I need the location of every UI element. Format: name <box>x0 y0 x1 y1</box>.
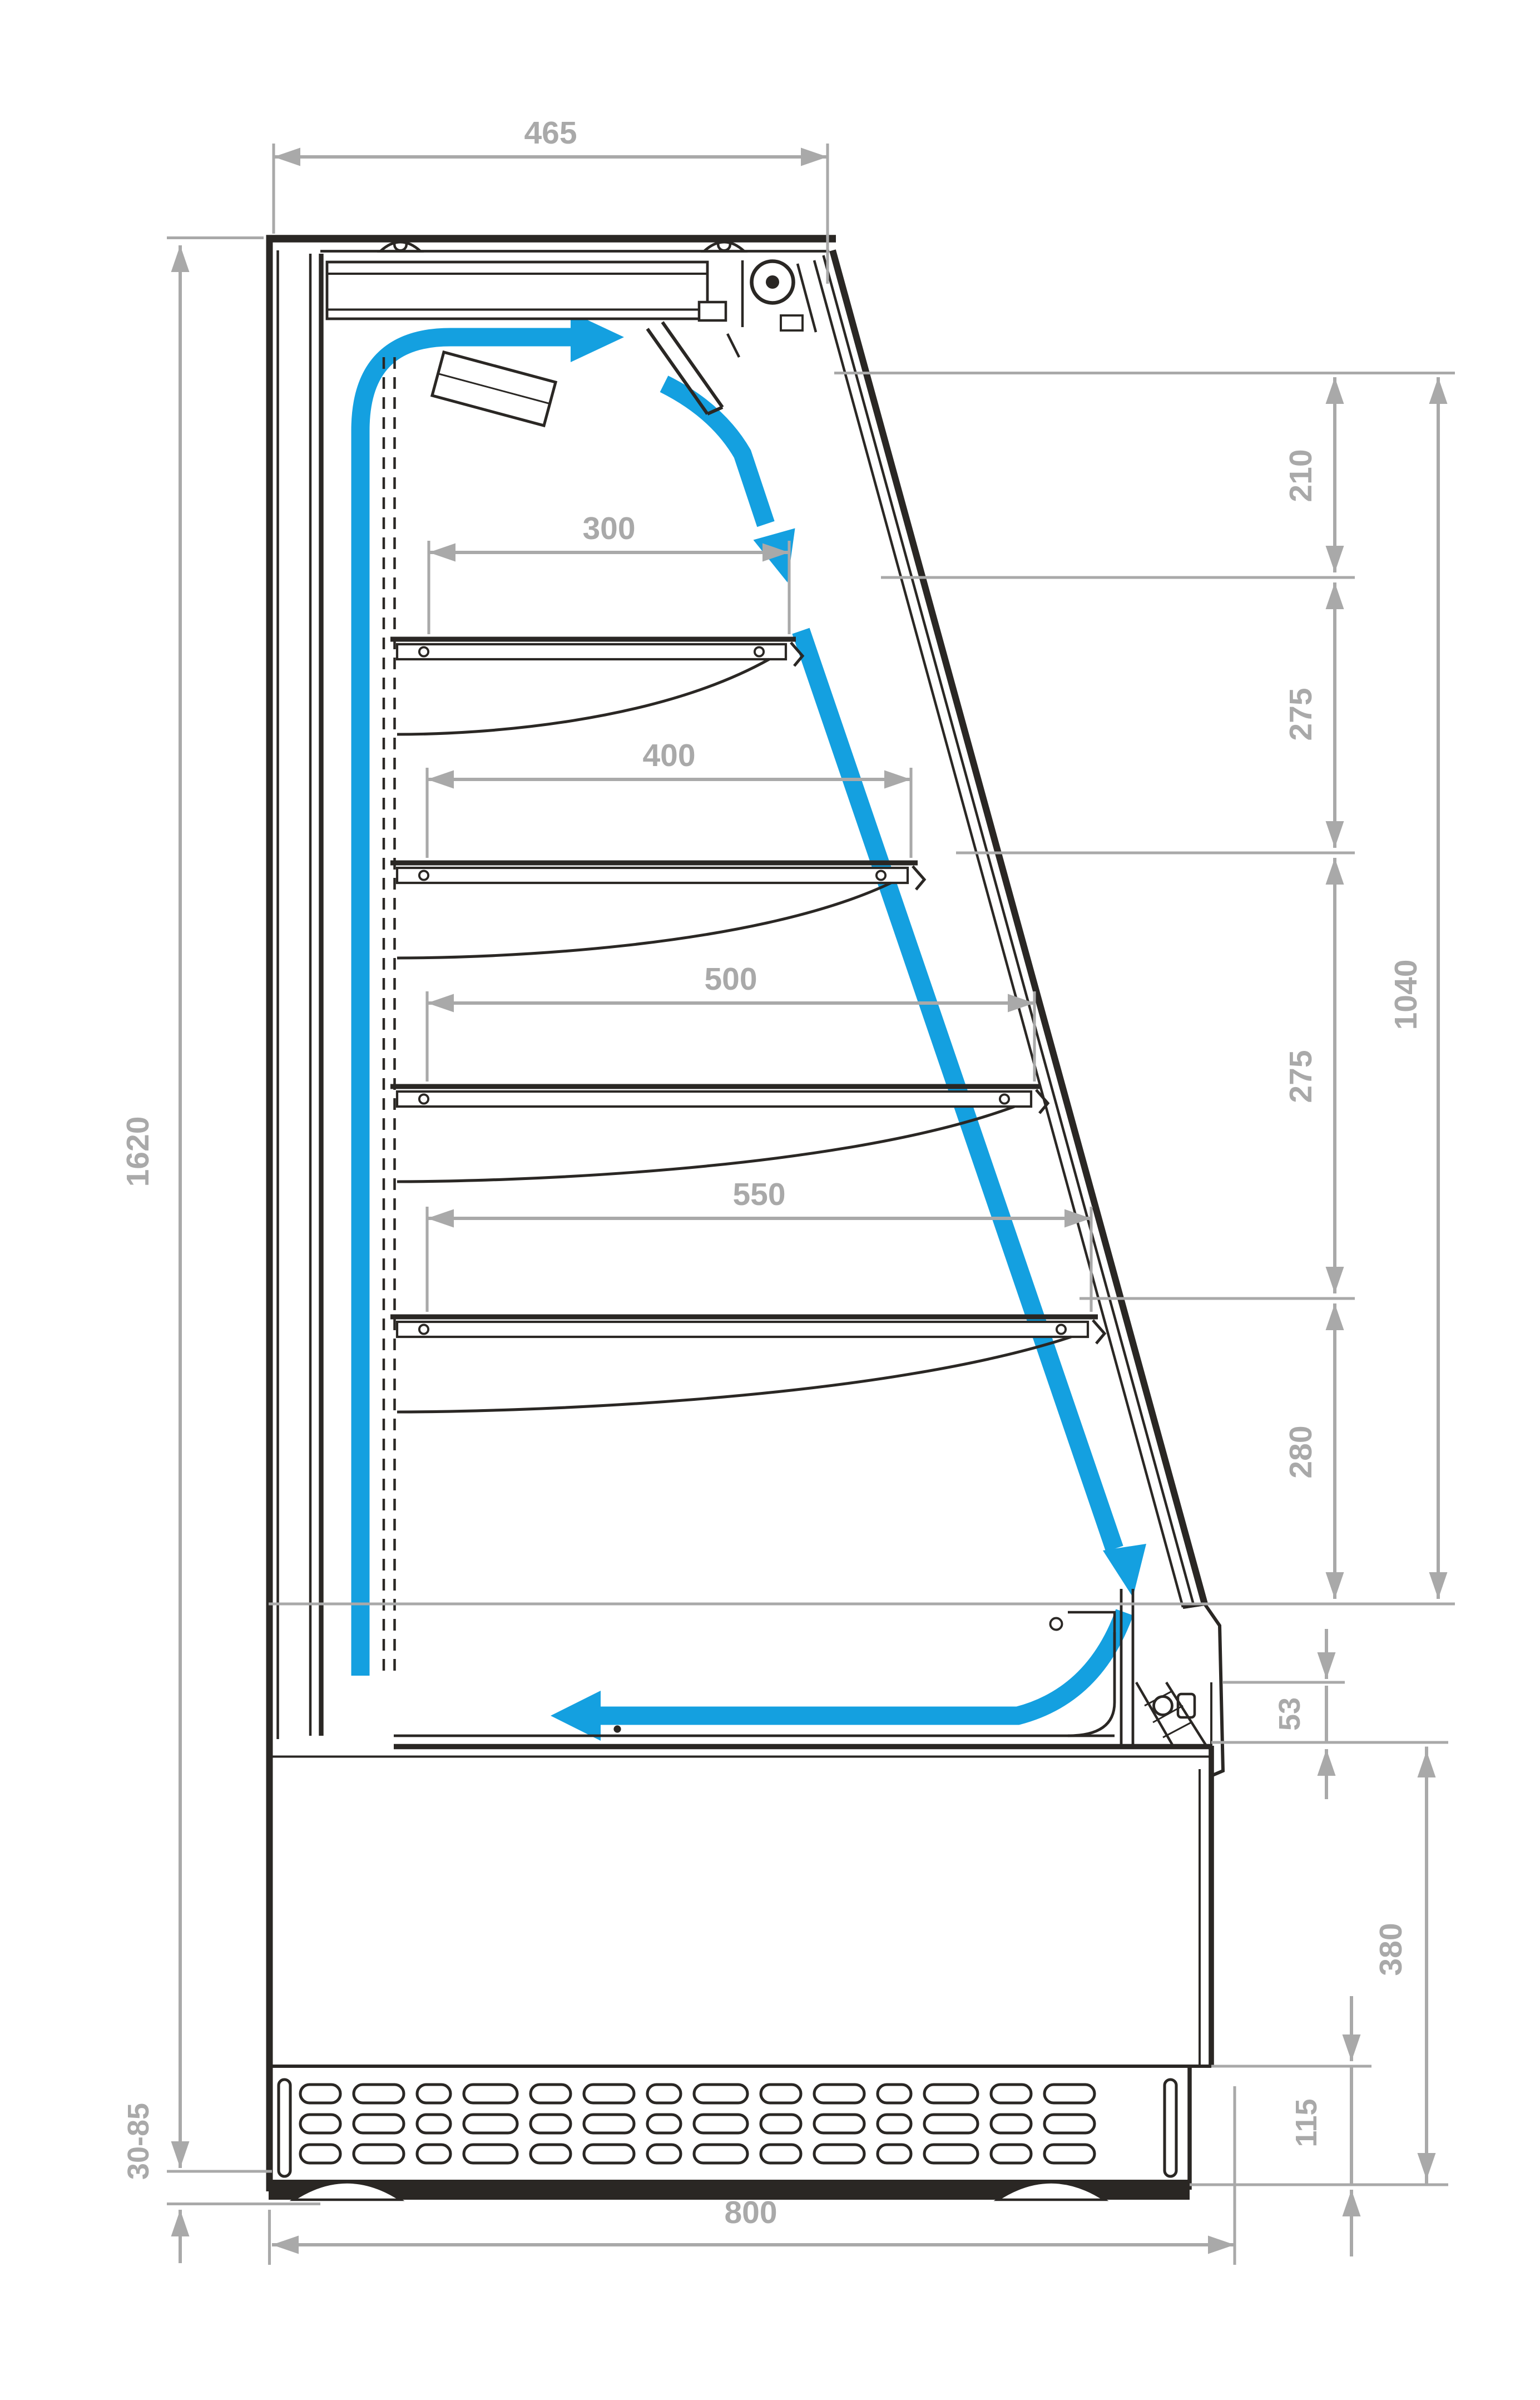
airflow-rear-duct-up <box>360 337 574 1676</box>
shelf-4 <box>390 1317 1105 1412</box>
dim-label-275b: 275 <box>1283 1050 1319 1103</box>
discharge-baffle <box>432 352 556 426</box>
dim-label-280: 280 <box>1283 1425 1319 1478</box>
shelf-3 <box>390 1087 1048 1182</box>
dim-grille-height: 115 <box>1290 1996 1351 2256</box>
dim-glass-height: 1040 <box>1388 377 1438 1599</box>
dim-label-275a: 275 <box>1283 688 1319 740</box>
drawing-page: 465 1620 30-85 800 300 400 500 <box>0 0 1540 2400</box>
glass-front <box>814 250 1205 1607</box>
base-compartment <box>269 1746 1211 2066</box>
airflow-discharge-curve <box>664 384 766 524</box>
dim-label-30-85: 30-85 <box>122 2103 155 2180</box>
dim-shelf-1: 300 <box>429 511 789 634</box>
dim-bumper: 53 <box>1273 1629 1326 1799</box>
dim-label-1620: 1620 <box>120 1117 156 1187</box>
vent-end-slot <box>1165 2080 1176 2176</box>
dim-label-800: 800 <box>724 2195 777 2230</box>
cabinet-cross-section-diagram: 465 1620 30-85 800 300 400 500 <box>0 0 1540 2400</box>
dim-top-depth: 465 <box>274 115 828 284</box>
dim-overall-height: 1620 <box>120 238 264 2169</box>
airflow-glass-stream <box>801 631 1115 1549</box>
dim-label-1040: 1040 <box>1388 960 1424 1030</box>
dim-label-210: 210 <box>1283 449 1319 502</box>
dim-label-550: 550 <box>732 1177 785 1212</box>
airflow-return-deck <box>581 1612 1125 1716</box>
back-wall <box>270 239 395 2191</box>
dim-label-400: 400 <box>642 738 695 773</box>
vent-grille <box>279 2066 1190 2190</box>
dim-right-chain: 210 275 275 280 <box>1283 377 1335 1599</box>
shelf-1 <box>390 639 803 734</box>
dim-label-53: 53 <box>1273 1697 1306 1731</box>
airflow-loop <box>360 312 1146 1741</box>
airflow-arrow-return-left-icon <box>551 1691 601 1741</box>
dim-label-380: 380 <box>1373 1923 1409 1976</box>
dim-label-465: 465 <box>524 115 577 151</box>
vent-end-slot <box>279 2080 290 2176</box>
dim-overall-depth: 800 <box>270 2086 1235 2265</box>
fan-icon <box>742 260 816 332</box>
dim-label-300: 300 <box>582 511 635 546</box>
dim-base-height: 380 <box>1373 1747 1427 2185</box>
dim-label-500: 500 <box>704 961 757 997</box>
shelf-2 <box>390 863 924 958</box>
drain-hole <box>613 1725 621 1732</box>
dim-label-115: 115 <box>1290 2098 1323 2147</box>
shelf-bracket-curve <box>397 659 769 734</box>
airflow-arrow-bottom-icon <box>1103 1544 1146 1597</box>
